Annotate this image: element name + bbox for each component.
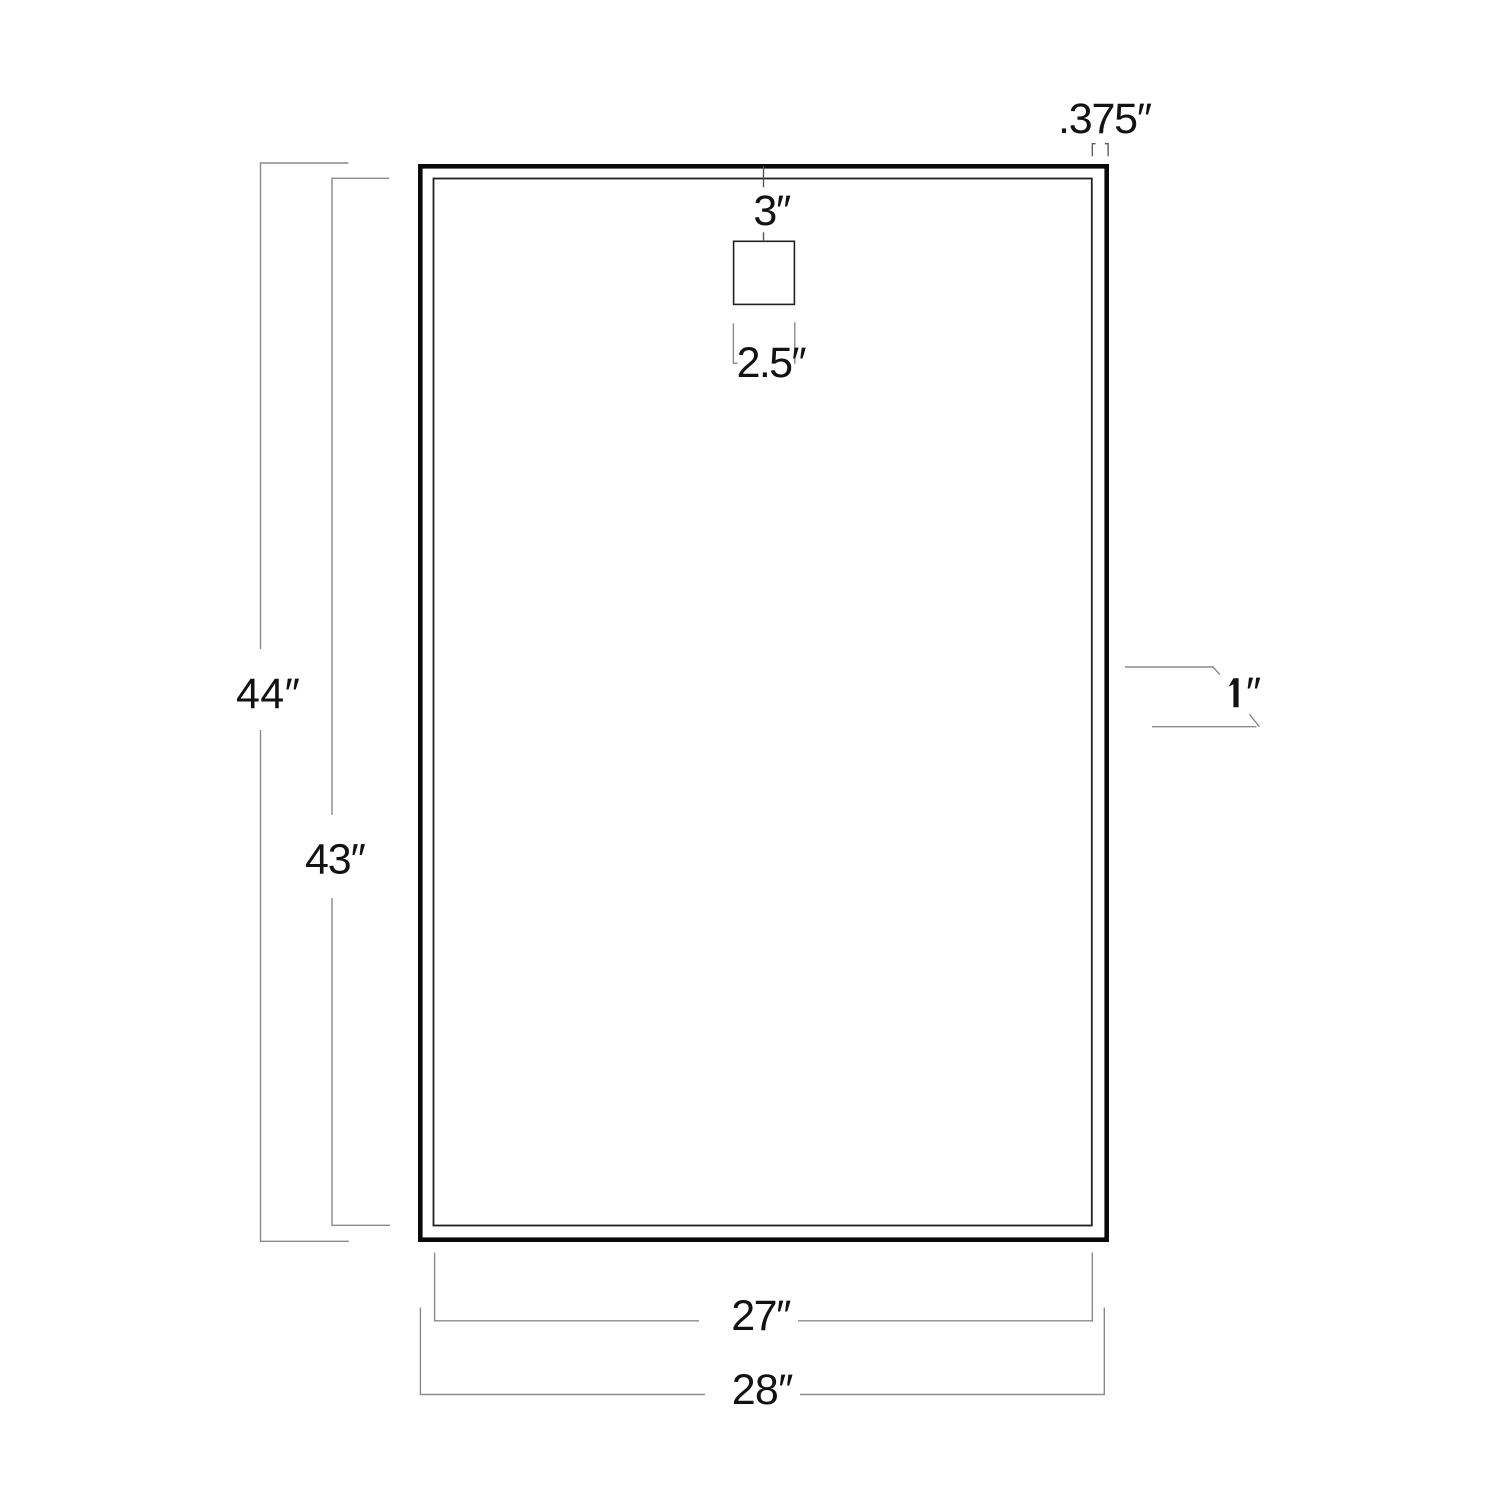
svg-text:43″: 43″ <box>305 836 366 884</box>
svg-text:″: ″ <box>1246 669 1261 717</box>
svg-text:28″: 28″ <box>732 1366 794 1414</box>
svg-text:27″: 27″ <box>731 1292 791 1340</box>
svg-text:44″: 44″ <box>236 670 300 718</box>
svg-text:.375″: .375″ <box>1058 95 1152 143</box>
svg-text:3″: 3″ <box>753 187 791 235</box>
svg-text:2.5″: 2.5″ <box>737 339 807 387</box>
